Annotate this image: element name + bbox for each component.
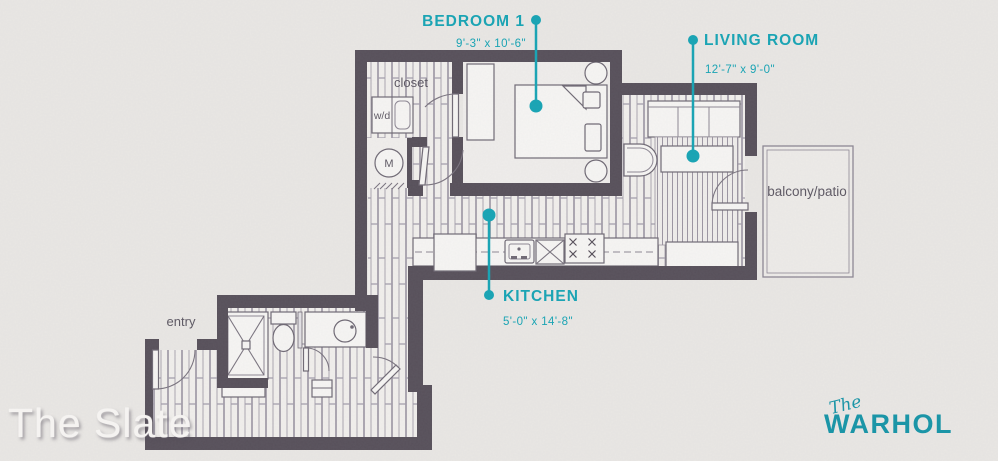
mechanical-label: M <box>384 158 393 170</box>
refrigerator <box>434 234 476 271</box>
tv-stand <box>666 242 738 267</box>
bed <box>515 85 607 158</box>
bedroom-dimensions: 9'-3" x 10'-6" <box>456 38 526 50</box>
building-logo-name: WARHOL <box>824 411 984 438</box>
floor-plan-name: The Slate <box>8 400 193 447</box>
kitchen-dimensions: 5'-0" x 14'-8" <box>503 316 573 328</box>
half-wall <box>298 312 302 348</box>
hall-cabinet <box>312 380 332 397</box>
washer-dryer-label: w/d <box>373 110 391 122</box>
kitchen-room-dot <box>483 209 496 222</box>
living-room-label: LIVING ROOM <box>704 32 819 49</box>
balcony <box>763 146 853 277</box>
side-table <box>624 144 657 176</box>
stove <box>565 234 604 263</box>
living-room-dimensions: 12'-7" x 9'-0" <box>705 64 775 76</box>
floor-plan-drawing: closet w/d M entry balcony/patio BEDROOM… <box>0 0 998 461</box>
entry-label: entry <box>167 314 196 329</box>
closet-label: closet <box>394 75 428 90</box>
living-room-room-dot <box>687 150 700 163</box>
nightstand <box>585 62 607 84</box>
building-logo: The WARHOL <box>824 401 984 438</box>
pillow <box>583 92 600 108</box>
bedroom-label: BEDROOM 1 <box>422 13 525 30</box>
nightstand <box>585 160 607 182</box>
kitchen-sink <box>505 240 534 263</box>
kitchen-callout-dot <box>484 290 494 300</box>
living-room-callout-dot <box>688 35 698 45</box>
dresser <box>467 64 494 140</box>
bedroom-callout-dot <box>531 15 541 25</box>
floor-plan-page: closet w/d M entry balcony/patio BEDROOM… <box>0 0 998 461</box>
bedroom-room-dot <box>530 100 543 113</box>
toilet <box>271 312 296 352</box>
dishwasher <box>536 240 564 264</box>
vanity <box>305 312 366 347</box>
pillow <box>585 124 601 151</box>
kitchen-label: KITCHEN <box>503 288 579 305</box>
shower <box>224 312 268 379</box>
balcony-label: balcony/patio <box>767 184 847 199</box>
